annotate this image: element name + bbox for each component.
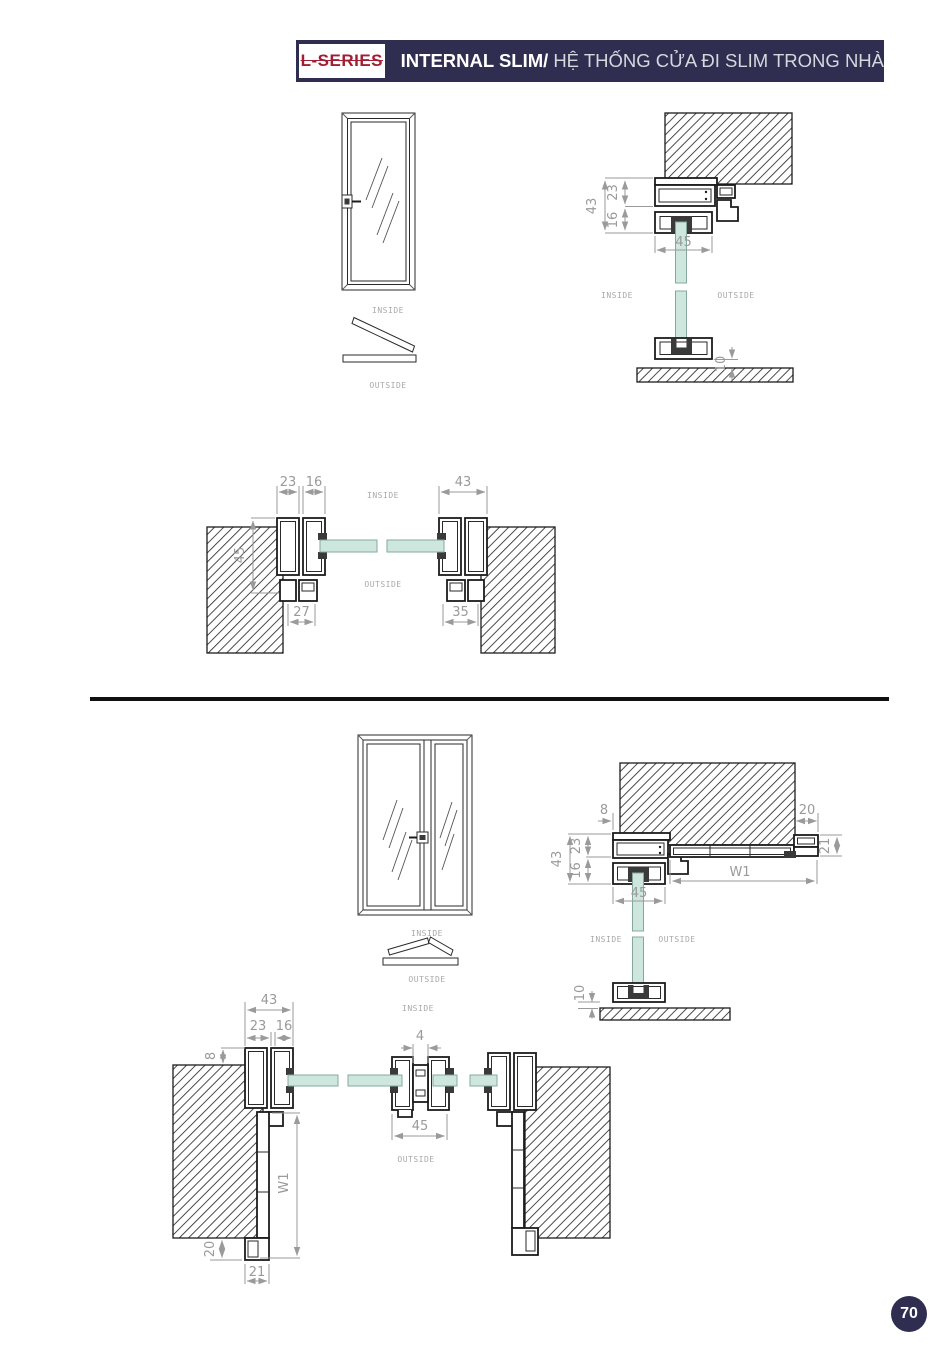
glass-pane bbox=[633, 873, 644, 931]
inside-label: INSIDE bbox=[367, 491, 399, 500]
dim-arch-offset: 20 bbox=[203, 1241, 218, 1258]
outside-label: OUTSIDE bbox=[369, 381, 406, 390]
left-jamb-assembly bbox=[277, 518, 327, 601]
outside-label: OUTSIDE bbox=[717, 291, 754, 300]
dim-jamb: 23 bbox=[250, 1019, 267, 1034]
dim-meeting-gap: 4 bbox=[416, 1029, 424, 1044]
single-door-elevation: INSIDE OUTSIDE bbox=[330, 100, 490, 395]
double-door-elevation: INSIDE OUTSIDE bbox=[340, 720, 500, 1000]
dim-wall-offset: 8 bbox=[204, 1052, 219, 1060]
glass-pane bbox=[433, 1075, 457, 1086]
dim-frame-bottom: 16 bbox=[569, 862, 584, 879]
dim-head-end: 20 bbox=[799, 803, 816, 818]
dim-leaf-width: 45 bbox=[675, 235, 692, 250]
dim-depth: 45 bbox=[233, 547, 248, 564]
series-badge: L-SERIES bbox=[299, 44, 385, 78]
dim-arch-right: 35 bbox=[452, 605, 469, 620]
glass-pane bbox=[320, 540, 377, 552]
dim-leaf: 16 bbox=[276, 1019, 293, 1034]
inside-label: INSIDE bbox=[372, 306, 404, 315]
catalog-page: L-SERIES INTERNAL SLIM/HỆ THỐNG CỬA ĐI S… bbox=[0, 0, 930, 1346]
inside-label: INSIDE bbox=[590, 935, 622, 944]
swing-diagram bbox=[343, 318, 416, 363]
leaf-bottom-profile bbox=[655, 338, 712, 359]
wall-hatch bbox=[481, 527, 555, 653]
dim-leaf-width: 45 bbox=[631, 886, 648, 901]
dim-frame-top: 23 bbox=[569, 838, 584, 855]
glass-pane bbox=[348, 1075, 402, 1086]
dim-jamb: 23 bbox=[280, 475, 297, 490]
series-label: L-SERIES bbox=[301, 51, 383, 71]
section-divider bbox=[90, 697, 889, 701]
door-leaves bbox=[358, 735, 472, 915]
dim-arch-left: 27 bbox=[293, 605, 310, 620]
dim-leaf: 16 bbox=[306, 475, 323, 490]
wall-hatch bbox=[525, 1067, 610, 1238]
glass-pane bbox=[470, 1075, 497, 1086]
dim-end-height: 21 bbox=[818, 838, 833, 855]
glass-pane bbox=[288, 1075, 338, 1086]
wall-hatch bbox=[207, 527, 283, 653]
wall-hatch bbox=[665, 113, 792, 184]
outside-label: OUTSIDE bbox=[397, 1155, 434, 1164]
dim-leaf-width: 45 bbox=[412, 1119, 429, 1134]
page-title: INTERNAL SLIM/HỆ THỐNG CỬA ĐI SLIM TRONG… bbox=[401, 50, 884, 72]
outside-label: OUTSIDE bbox=[364, 580, 401, 589]
dim-clear-width: W1 bbox=[277, 1172, 292, 1193]
single-door-horizontal-section: 23 16 43 45 27 35 INSIDE OUTSIDE bbox=[180, 460, 590, 680]
double-door-horizontal-section: 43 23 16 8 4 45 W1 20 21 INSIDE bbox=[160, 990, 650, 1300]
title-english: INTERNAL SLIM/ bbox=[401, 50, 549, 71]
inside-label: INSIDE bbox=[411, 929, 443, 938]
swing-diagram bbox=[383, 937, 458, 965]
glass-pane bbox=[676, 222, 687, 283]
page-number-badge: 70 bbox=[891, 1296, 927, 1332]
dim-frame-top: 23 bbox=[606, 184, 621, 201]
inside-label: INSIDE bbox=[402, 1004, 434, 1013]
glass-pane bbox=[387, 540, 444, 552]
glass-pane bbox=[633, 937, 644, 985]
inside-label: INSIDE bbox=[601, 291, 633, 300]
title-vietnamese: HỆ THỐNG CỬA ĐI SLIM TRONG NHÀ bbox=[553, 50, 884, 71]
glass-pane bbox=[676, 291, 687, 342]
dim-frame-total: 43 bbox=[455, 475, 472, 490]
dim-frame-bottom: 16 bbox=[606, 212, 621, 229]
header-bar: L-SERIES INTERNAL SLIM/HỆ THỐNG CỬA ĐI S… bbox=[296, 40, 884, 82]
single-door-vertical-section: 43 23 16 45 10 INSIDE OUTSIDE bbox=[580, 100, 880, 395]
dim-arch-width: 21 bbox=[249, 1265, 266, 1280]
dim-frame-total: 43 bbox=[550, 851, 565, 868]
outside-label: OUTSIDE bbox=[408, 975, 445, 984]
dim-floor-gap: 10 bbox=[714, 356, 729, 373]
dim-wall-offset: 8 bbox=[600, 803, 608, 818]
dim-frame-total: 43 bbox=[261, 993, 278, 1008]
right-jamb-assembly bbox=[437, 518, 487, 601]
dim-frame-total: 43 bbox=[585, 198, 600, 215]
dim-clear-width: W1 bbox=[729, 865, 750, 880]
door-leaf bbox=[342, 113, 415, 290]
meeting-stiles bbox=[390, 1057, 454, 1117]
outside-label: OUTSIDE bbox=[658, 935, 695, 944]
page-number: 70 bbox=[900, 1305, 918, 1323]
